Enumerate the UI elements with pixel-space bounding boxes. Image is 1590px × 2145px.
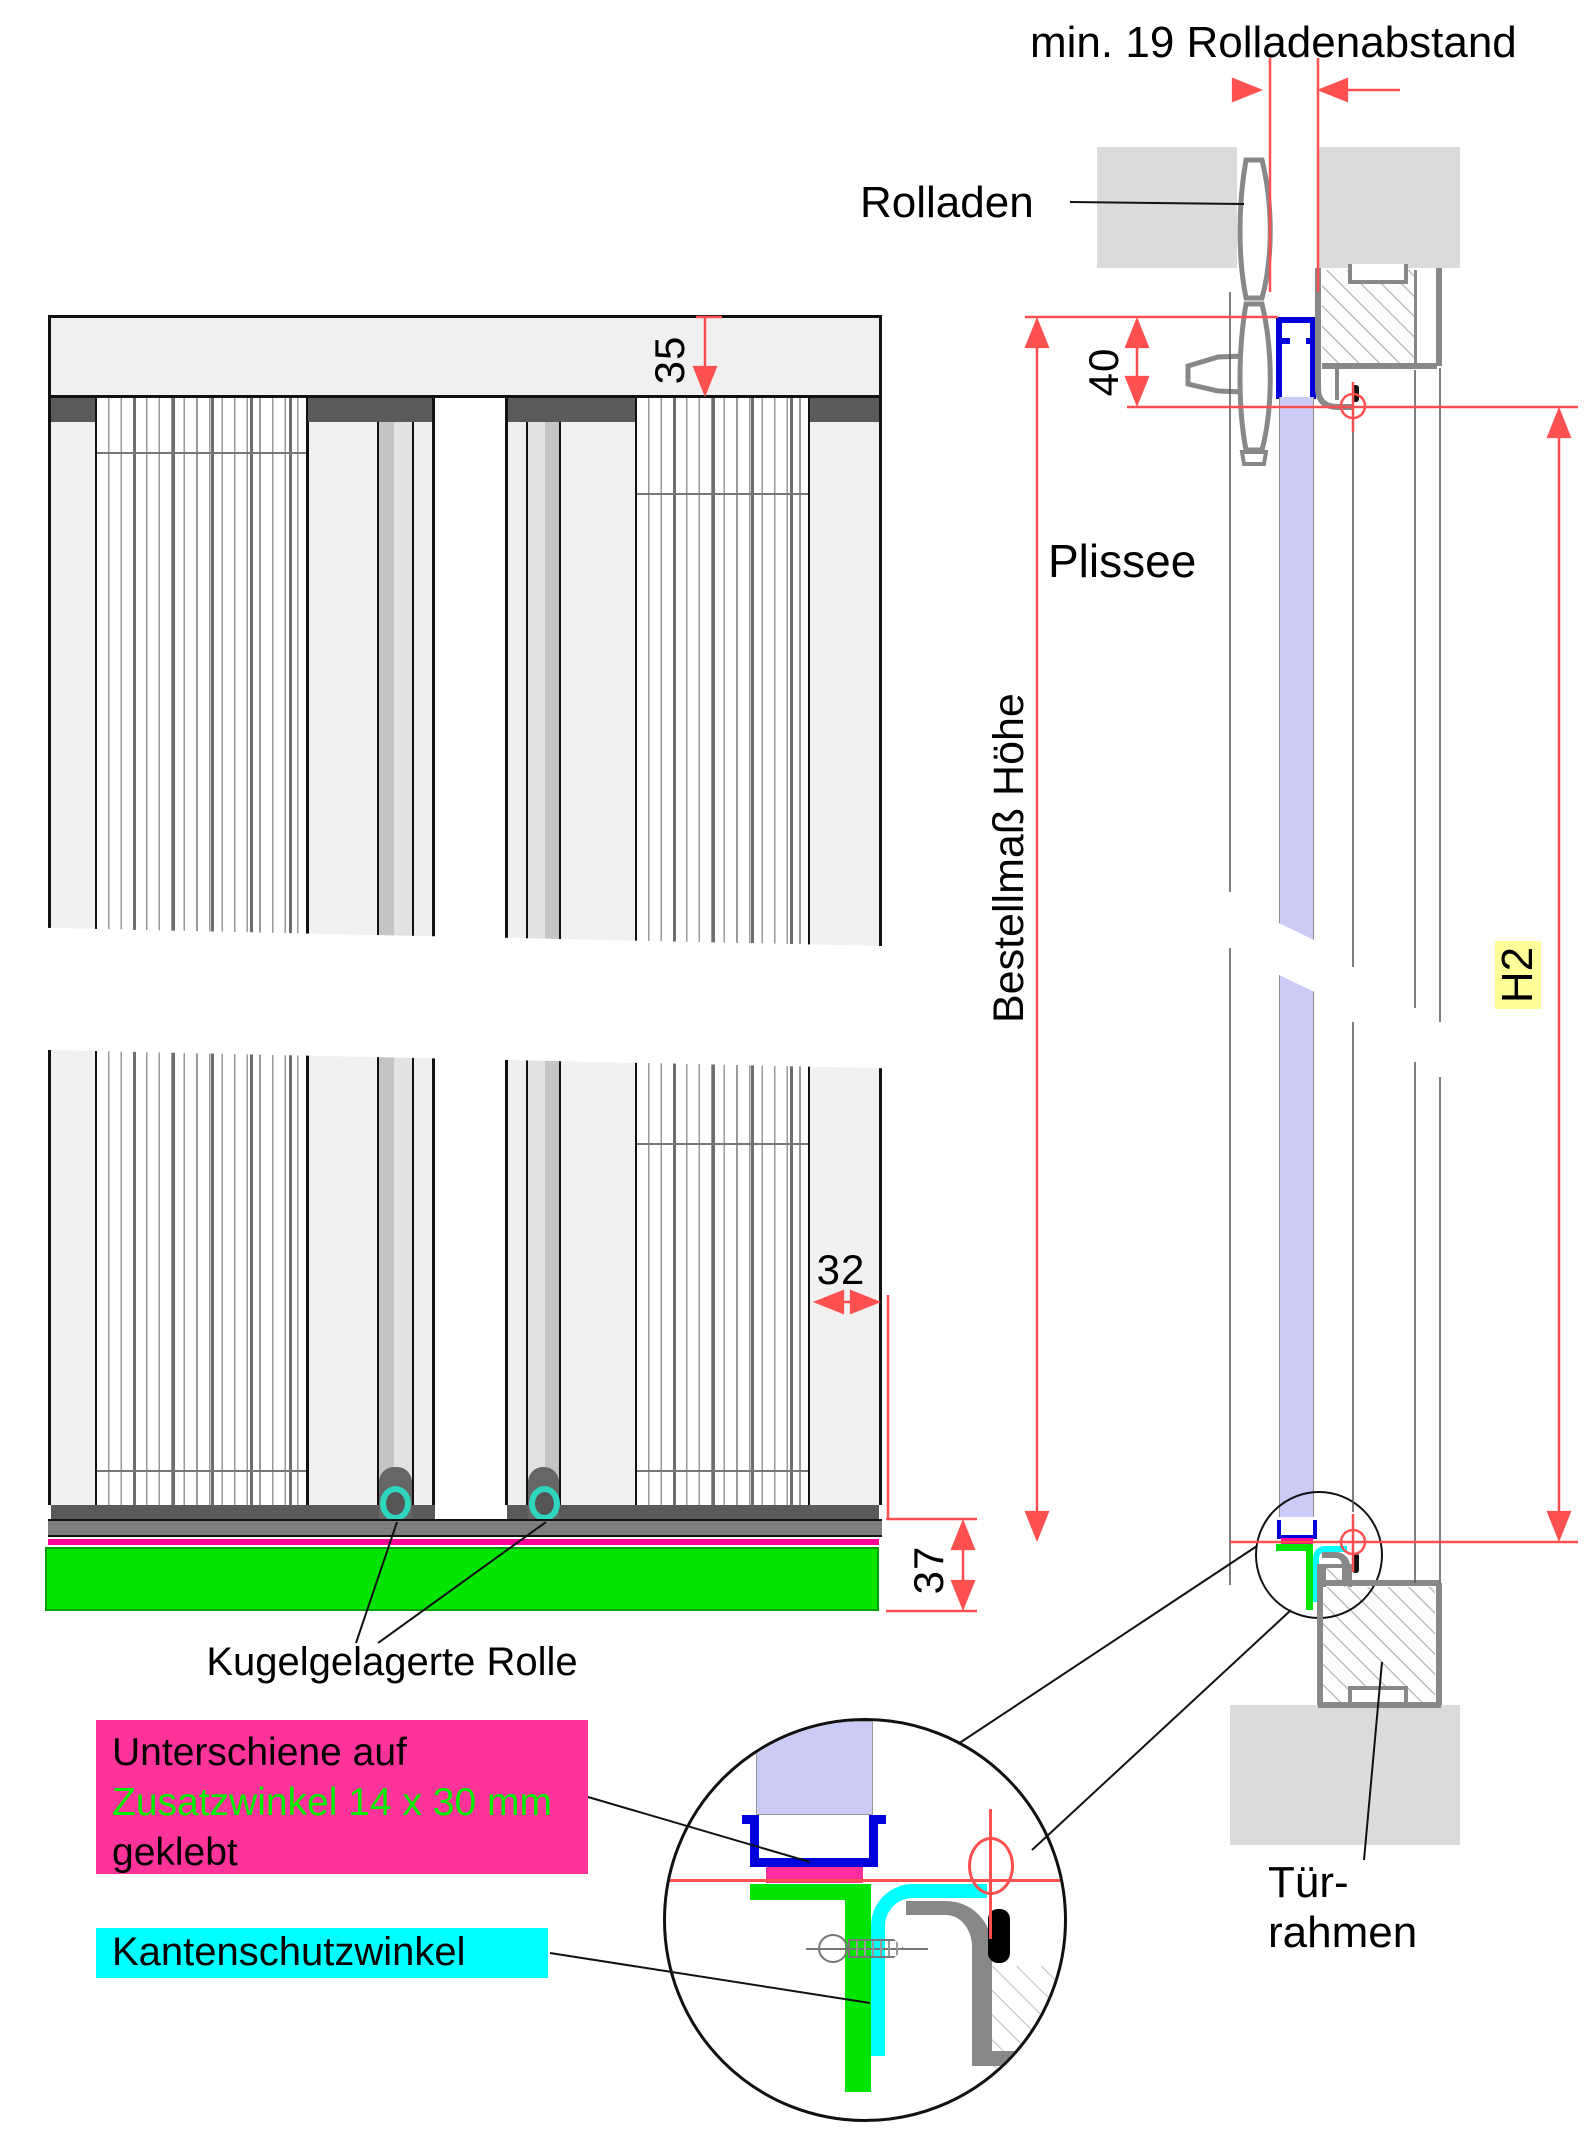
plissee-label: Plissee <box>1048 534 1196 588</box>
edge-profile <box>414 398 432 946</box>
frame-top-white-column <box>1414 270 1437 364</box>
magenta-adhesive-tape <box>48 1539 879 1545</box>
edge-profile <box>508 398 526 946</box>
center-rail-right <box>528 1050 559 1505</box>
gray-angle-foot-v <box>1010 2065 1030 2122</box>
pleated-fabric-right <box>637 1050 808 1505</box>
joint <box>377 398 379 946</box>
red-crosshair-vline <box>989 1809 992 1939</box>
wall-lintel-left <box>1097 147 1237 268</box>
door-frame-top-section <box>1322 270 1414 366</box>
dim-40: 40 <box>1080 339 1128 405</box>
plissee-fabric-detail <box>756 1721 873 1815</box>
pleat-divider <box>97 452 306 454</box>
pleat-divider <box>637 493 808 495</box>
stile <box>561 398 635 946</box>
unterschiene-line3: geklebt <box>112 1828 588 1878</box>
joint <box>879 1050 882 1505</box>
pleat-divider <box>637 1470 808 1472</box>
stile <box>51 398 95 946</box>
top-profile-strip <box>810 398 879 422</box>
kugelgelagerte-rolle-label: Kugelgelagerte Rolle <box>196 1640 588 1685</box>
blue-rail-lip <box>742 1815 759 1824</box>
blue-rail-lip <box>869 1815 886 1824</box>
front-lower-section <box>48 1050 882 1505</box>
blue-unterschiene-detail <box>750 1815 878 1867</box>
dim-35: 35 <box>646 327 694 393</box>
top-profile-strip <box>51 398 95 422</box>
pleated-fabric-left <box>97 1050 306 1505</box>
joint <box>505 1050 508 1505</box>
floor-wall-bottom <box>1230 1705 1460 1845</box>
joint <box>432 1050 435 1505</box>
plissee-fabric-band-lower <box>1279 975 1314 1517</box>
bottom-profile-strip <box>507 1505 879 1519</box>
dim-37: 37 <box>905 1535 953 1605</box>
green-zusatzwinkel-detail-h <box>750 1884 860 1900</box>
front-top-rail <box>48 315 882 398</box>
drawing-canvas: min. 19 Rolladenabstand Rolladen Plissee… <box>0 0 1590 2145</box>
center-rail-left <box>379 1050 412 1505</box>
joint <box>432 398 435 946</box>
gray-angle-foot <box>972 2051 1030 2066</box>
ball-bearing-roller <box>380 1486 411 1521</box>
seal-mark <box>1352 385 1359 402</box>
pleated-fabric-right <box>637 398 808 946</box>
blue-rail-lip <box>1282 338 1290 344</box>
plissee-fabric-band-upper <box>1279 397 1314 940</box>
blue-rail-lip <box>1306 338 1314 344</box>
center-rail-left <box>379 398 412 946</box>
wall-lintel-right <box>1318 147 1460 268</box>
top-profile-strip <box>508 398 635 422</box>
joint <box>306 1050 309 1505</box>
joint <box>559 1050 561 1505</box>
frame-top-notch <box>1348 264 1408 284</box>
gray-edge-angle-detail <box>906 1901 992 2065</box>
kantenschutz-label: Kantenschutzwinkel <box>112 1930 466 1974</box>
joint <box>526 1050 528 1505</box>
stile <box>51 1050 95 1505</box>
bottom-rail-bar <box>48 1519 882 1537</box>
green-zusatzwinkel-bar <box>45 1547 879 1611</box>
bottom-profile-strip <box>51 1505 435 1519</box>
joint <box>95 398 97 946</box>
joint <box>879 398 882 946</box>
joint <box>559 398 561 946</box>
bestellmass-hoehe-label: Bestellmaß Höhe <box>985 728 1034 1023</box>
joint <box>635 1050 637 1505</box>
front-upper-section <box>48 398 882 946</box>
frame-bottom-notch <box>1348 1686 1408 1705</box>
joint <box>377 1050 379 1505</box>
min19-rolladenabstand-label: min. 19 Rolladenabstand <box>1030 18 1570 68</box>
top-profile-strip <box>308 398 432 422</box>
stile <box>561 1050 635 1505</box>
joint <box>95 1050 97 1505</box>
stile <box>308 1050 377 1505</box>
tuerrahmen-line1: Tür- <box>1268 1858 1417 1908</box>
joint <box>48 1050 51 1505</box>
unterschiene-line1: Unterschiene auf <box>112 1728 588 1778</box>
kantenschutz-callout-box: Kantenschutzwinkel <box>96 1928 548 1978</box>
detail-indicator-circle <box>1255 1491 1383 1619</box>
stile <box>308 398 377 946</box>
pleat-divider <box>97 1470 306 1472</box>
joint <box>48 398 51 946</box>
pleat-divider <box>637 1143 808 1145</box>
unterschiene-callout-box: Unterschiene auf Zusatzwinkel 14 x 30 mm… <box>96 1720 588 1874</box>
joint <box>808 398 810 946</box>
rolladen-label: Rolladen <box>860 178 1034 228</box>
tuerrahmen-label: Tür- rahmen <box>1268 1858 1417 1958</box>
joint <box>412 398 414 946</box>
screw-shaft-icon <box>848 1939 904 1958</box>
h2-label: H2 <box>1495 941 1541 1009</box>
unterschiene-line2: Zusatzwinkel 14 x 30 mm <box>112 1778 588 1828</box>
joint <box>412 1050 414 1505</box>
screw-head-icon <box>818 1934 848 1963</box>
edge-profile <box>508 1050 526 1505</box>
tuerrahmen-line2: rahmen <box>1268 1908 1417 1958</box>
joint <box>505 398 508 946</box>
blue-top-rail-profile <box>1276 317 1316 399</box>
stile <box>810 398 879 946</box>
detail-circle <box>663 1718 1067 2122</box>
center-rail-right <box>528 398 559 946</box>
pleated-fabric-left <box>97 398 306 946</box>
joint <box>306 398 309 946</box>
ball-bearing-roller <box>529 1486 560 1521</box>
joint <box>635 398 637 946</box>
dim-32: 32 <box>806 1246 876 1294</box>
green-zusatzwinkel-detail-v <box>845 1884 871 2092</box>
edge-profile <box>414 1050 432 1505</box>
joint <box>526 398 528 946</box>
